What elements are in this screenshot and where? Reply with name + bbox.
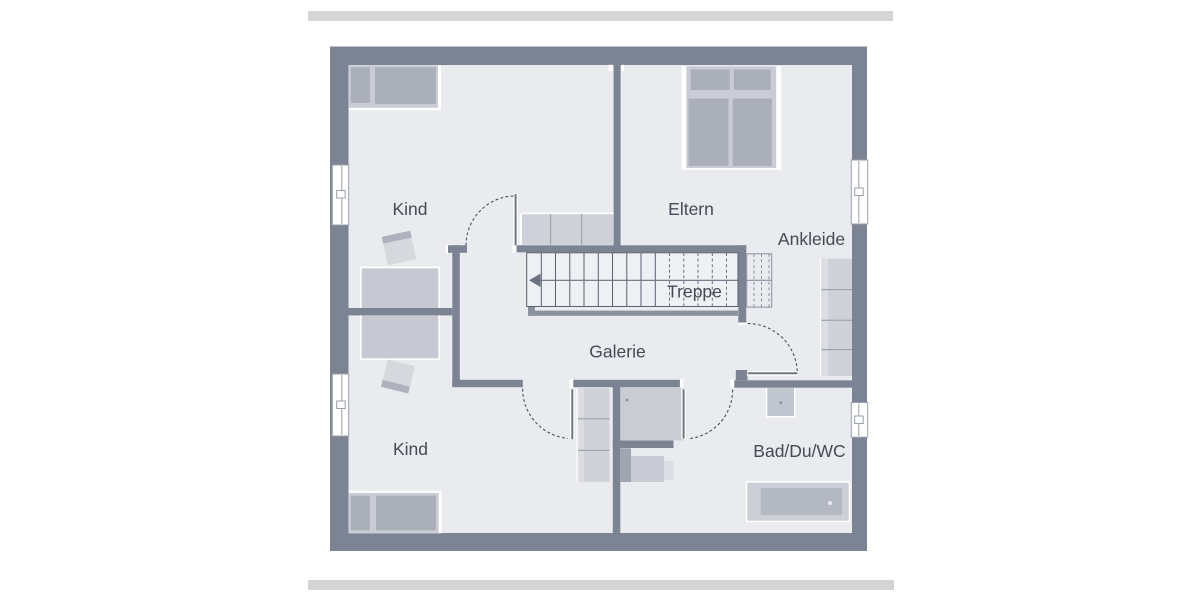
svg-text:Galerie: Galerie	[589, 342, 645, 362]
svg-text:Bad/Du/WC: Bad/Du/WC	[753, 441, 845, 461]
svg-text:Eltern: Eltern	[668, 199, 714, 219]
svg-text:Kind: Kind	[393, 439, 428, 459]
svg-text:Ankleide: Ankleide	[778, 229, 845, 249]
svg-text:Treppe: Treppe	[667, 282, 722, 302]
svg-text:Kind: Kind	[392, 199, 427, 219]
